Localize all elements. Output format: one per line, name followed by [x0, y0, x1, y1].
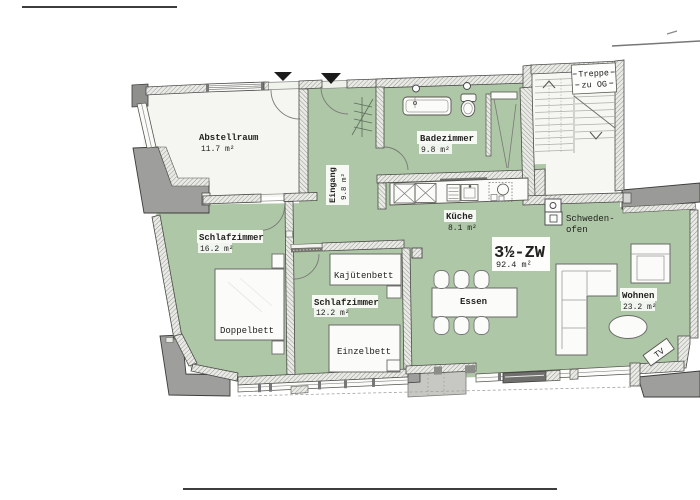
svg-text:8.1 m²: 8.1 m² — [448, 224, 477, 233]
svg-text:Schweden-: Schweden- — [566, 214, 615, 224]
svg-text:Treppe: Treppe — [578, 68, 609, 80]
svg-text:Kajütenbett: Kajütenbett — [334, 271, 393, 281]
svg-text:92.4 m²: 92.4 m² — [496, 260, 532, 270]
svg-text:Abstellraum: Abstellraum — [199, 133, 259, 143]
svg-text:Eingang: Eingang — [328, 167, 338, 203]
svg-text:Schlafzimmer: Schlafzimmer — [199, 233, 264, 243]
svg-text:Wohnen: Wohnen — [622, 291, 654, 301]
svg-text:Küche: Küche — [446, 212, 473, 222]
svg-text:Badezimmer: Badezimmer — [420, 134, 474, 144]
svg-text:23.2 m²: 23.2 m² — [623, 303, 657, 312]
svg-text:ofen: ofen — [566, 225, 588, 235]
svg-text:16.2 m²: 16.2 m² — [200, 245, 234, 254]
svg-text:Einzelbett: Einzelbett — [337, 347, 391, 357]
svg-text:Schlafzimmer: Schlafzimmer — [314, 298, 379, 308]
svg-text:zu OG: zu OG — [581, 79, 607, 90]
svg-text:12.2 m²: 12.2 m² — [316, 309, 350, 318]
svg-text:11.7 m²: 11.7 m² — [201, 145, 235, 154]
svg-text:Essen: Essen — [460, 297, 487, 307]
svg-text:Doppelbett: Doppelbett — [220, 326, 274, 336]
svg-text:9.8 m²: 9.8 m² — [421, 146, 450, 155]
svg-text:9.8 m²: 9.8 m² — [340, 173, 349, 200]
